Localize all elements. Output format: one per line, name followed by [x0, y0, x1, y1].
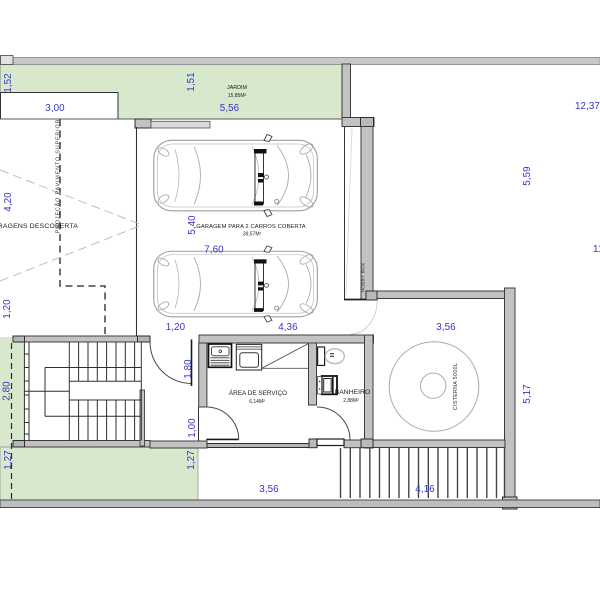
- svg-text:1,27: 1,27: [186, 450, 197, 469]
- svg-text:3,56: 3,56: [436, 322, 456, 333]
- svg-text:12,37: 12,37: [575, 101, 600, 112]
- svg-text:6,14M²: 6,14M²: [249, 399, 265, 405]
- svg-text:02 GARAGENS DESCOBERTA: 02 GARAGENS DESCOBERTA: [0, 223, 78, 230]
- svg-text:7,60: 7,60: [204, 245, 224, 256]
- svg-text:5,59: 5,59: [522, 166, 533, 185]
- svg-text:5,17: 5,17: [522, 384, 533, 403]
- svg-text:15,85M²: 15,85M²: [228, 93, 247, 99]
- svg-text:CISTERNA 5000L: CISTERNA 5000L: [453, 363, 459, 410]
- svg-text:4,36: 4,36: [278, 322, 298, 333]
- svg-text:PROJEÇÃO PAVIMENTO SUPERIOR: PROJEÇÃO PAVIMENTO SUPERIOR: [55, 119, 62, 234]
- svg-text:2,88M²: 2,88M²: [343, 398, 359, 404]
- svg-text:GARAGEM PARA 2 CARROS COBERTA: GARAGEM PARA 2 CARROS COBERTA: [196, 224, 306, 230]
- svg-text:5,56: 5,56: [220, 103, 240, 114]
- svg-text:4,20: 4,20: [3, 192, 14, 212]
- svg-text:4,16: 4,16: [415, 484, 435, 495]
- svg-text:1,20: 1,20: [166, 322, 186, 333]
- svg-text:BANHEIRO: BANHEIRO: [335, 389, 371, 396]
- svg-text:11,97: 11,97: [593, 244, 600, 255]
- svg-text:39,57M²: 39,57M²: [243, 232, 262, 238]
- svg-text:1,52: 1,52: [3, 73, 14, 92]
- svg-text:2,80: 2,80: [2, 381, 13, 401]
- svg-text:1,80: 1,80: [183, 359, 194, 379]
- svg-text:5,40: 5,40: [187, 215, 198, 235]
- svg-text:1,51: 1,51: [186, 72, 197, 91]
- svg-text:JARDIM: JARDIM: [227, 85, 248, 91]
- svg-text:HOBBY BOX: HOBBY BOX: [361, 263, 366, 293]
- svg-text:3,56: 3,56: [259, 484, 279, 495]
- svg-text:1,20: 1,20: [2, 299, 13, 319]
- svg-text:ÁREA DE SERVIÇO: ÁREA DE SERVIÇO: [229, 388, 287, 397]
- svg-text:1,00: 1,00: [187, 418, 198, 438]
- svg-text:1,27: 1,27: [3, 450, 14, 469]
- svg-text:3,00: 3,00: [45, 103, 65, 114]
